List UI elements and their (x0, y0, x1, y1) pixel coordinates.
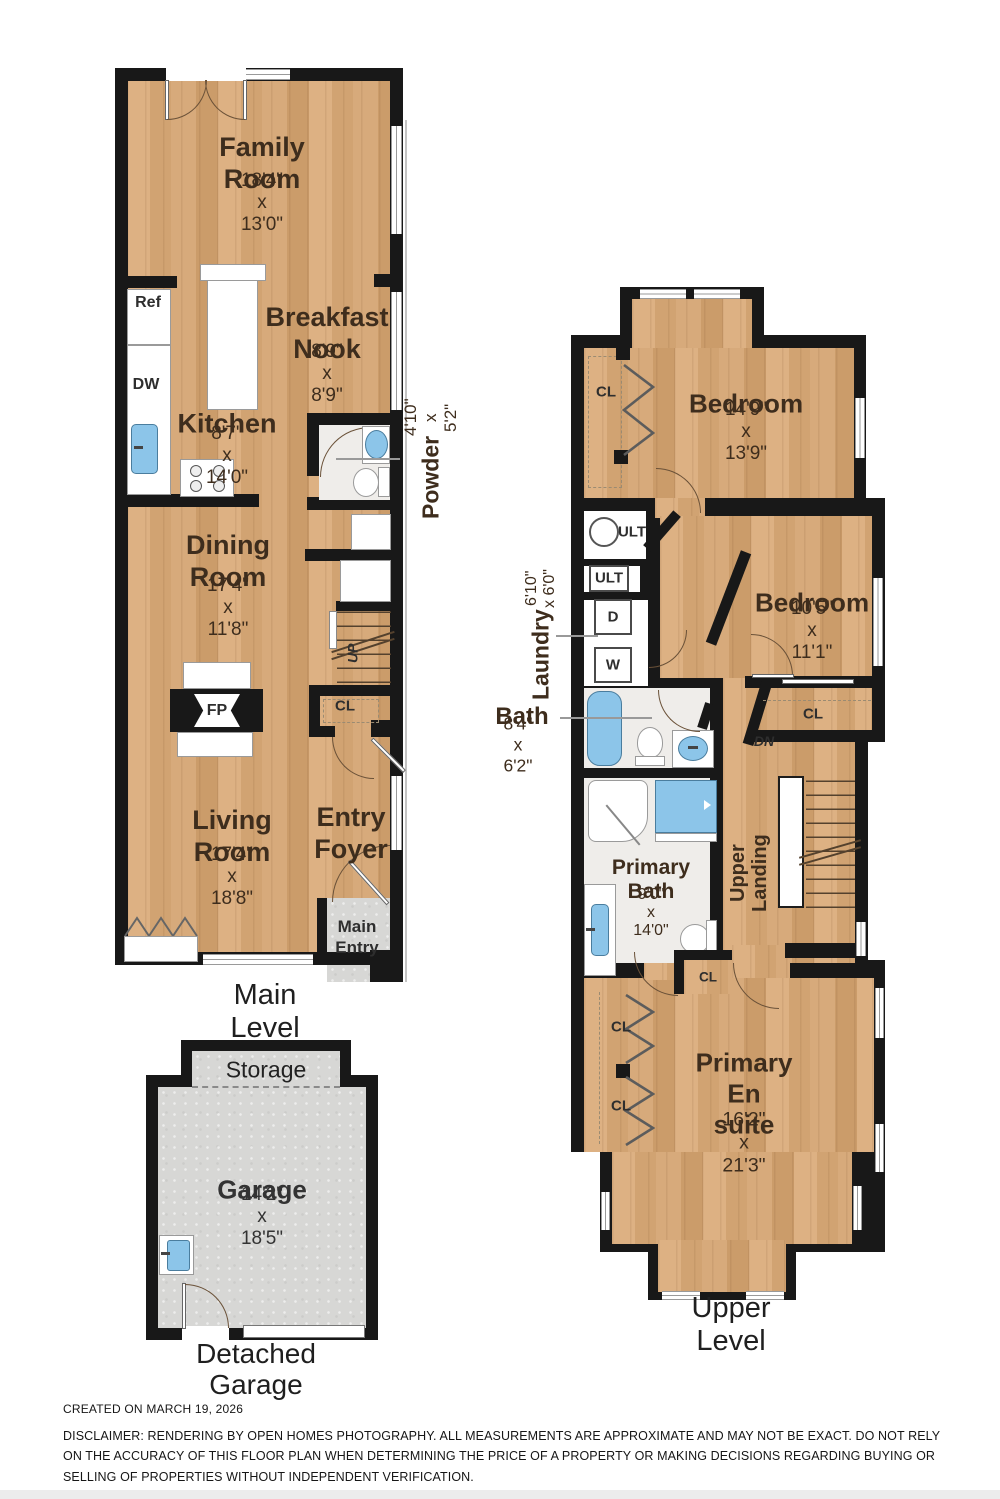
fireplace-label: FP (207, 702, 227, 720)
bifold-door (622, 364, 655, 456)
created-date: CREATED ON MARCH 19, 2026 (63, 1402, 243, 1416)
faucet-icon (586, 928, 595, 931)
room-dims-family: 18'4" x 13'0" (241, 170, 283, 236)
bay-floor (632, 299, 752, 353)
storage-label: Storage (226, 1057, 307, 1084)
window-niche (351, 514, 391, 550)
up-text: UP (345, 643, 361, 662)
window (640, 289, 686, 299)
wall (181, 1040, 351, 1051)
window (856, 922, 866, 956)
wall (336, 601, 403, 611)
toilet-bowl (637, 727, 663, 758)
room-dims-primary-bath: 9'0" x 14'0" (633, 886, 668, 940)
closet-label: CL (335, 698, 355, 715)
up-label: UP (344, 632, 361, 674)
room-label-powder: Powder 4'10" x 5'2" (399, 400, 463, 518)
window (853, 1186, 862, 1230)
shower-ledge (655, 833, 717, 842)
room-dims-bath: 8'4" x 6'2" (503, 714, 532, 777)
room-dims-garage: 14'2" x 18'5" (241, 1184, 283, 1250)
kitchen-island (207, 281, 258, 410)
wall (309, 685, 392, 696)
wall (307, 413, 403, 425)
room-label-foyer: Entry Foyer (314, 801, 388, 865)
room-dims-kitchen: 8'7" x 14'0" (206, 423, 248, 489)
wall (309, 726, 335, 737)
faucet-icon (134, 446, 143, 449)
shower-door-icon (640, 806, 647, 816)
stairwell (778, 776, 804, 908)
burner-icon (190, 480, 202, 492)
closet-dashed (763, 700, 871, 701)
washer-label: W (606, 657, 620, 674)
bathtub (587, 691, 622, 766)
garage-door (243, 1325, 365, 1338)
window (391, 776, 402, 850)
window (873, 578, 883, 666)
utility-label: ULT (595, 570, 623, 587)
window (875, 988, 884, 1038)
closet-label: CL (803, 706, 823, 723)
room-dims-dining: 17'4" x 11'8" (207, 575, 249, 641)
stair-rail (329, 611, 337, 649)
bay-zigzag (124, 916, 198, 938)
dishwasher-label: DW (133, 376, 160, 394)
door-leaf (752, 674, 794, 678)
closet-opening (782, 679, 854, 684)
toilet-tank (635, 756, 665, 766)
bottom-strip (0, 1490, 1000, 1499)
closet-label: CL (699, 970, 717, 985)
fireplace-hearth (177, 732, 253, 757)
main-level-title: Main Level (230, 979, 299, 1045)
fireplace-hearth (183, 662, 251, 689)
floor-plan-canvas: Ref DW Powder 4'10" x 5'2" UP (0, 0, 1000, 1499)
stair-landing (340, 560, 391, 602)
faucet-icon (161, 1252, 170, 1255)
dryer-label: D (608, 609, 619, 626)
window (391, 292, 402, 410)
window (601, 1192, 610, 1230)
water-heater-icon (589, 517, 619, 547)
window (875, 1124, 884, 1172)
storage-dashed-line (192, 1086, 340, 1088)
wall (616, 346, 630, 360)
room-dims-breakfast: 8'9" x 8'9" (311, 341, 343, 407)
closet-label: CL (596, 384, 616, 401)
ref-label: Ref (135, 294, 161, 312)
property-line (405, 120, 407, 982)
island-counter (200, 264, 266, 281)
wall (307, 413, 319, 476)
wall (115, 68, 128, 965)
room-dims-ensuite: 16'2" x 21'3" (722, 1109, 765, 1178)
toilet-bowl (353, 468, 379, 497)
closet-dashed (599, 992, 600, 1144)
shower-door-icon (704, 800, 711, 810)
wall (674, 950, 684, 994)
dn-label: DN (754, 733, 774, 749)
closet-label: CL (611, 1019, 631, 1036)
upper-landing-label: Upper Landing (727, 798, 771, 948)
toilet-tank (378, 467, 390, 497)
window (203, 954, 313, 965)
window (391, 126, 402, 234)
room-dims-bedroom2: 10'5" x 11'1" (791, 598, 833, 664)
powder-dims: 4'10" x 5'2" (401, 399, 461, 437)
faucet-icon (688, 746, 698, 749)
window (855, 398, 865, 458)
shower (588, 780, 648, 842)
burner-icon (190, 465, 202, 477)
leader-line (336, 458, 400, 460)
wall (374, 274, 403, 287)
room-label-laundry: Laundry 6'10" x 6'0" (513, 568, 569, 700)
window (694, 289, 740, 299)
laundry-dims: 6'10" x 6'0" (523, 568, 559, 609)
room-dims-bedroom1: 14'9" x 13'9" (725, 399, 767, 465)
main-entry-label: Main Entry (335, 916, 378, 958)
window (246, 69, 290, 80)
upper-level-title: Upper Level (692, 1292, 771, 1358)
disclaimer-text: DISCLAIMER: RENDERING BY OPEN HOMES PHOT… (63, 1426, 945, 1487)
wall (115, 276, 177, 288)
room-dims-living: 17'4" x 18'8" (211, 844, 253, 910)
kitchen-sink (131, 424, 158, 474)
closet-label: CL (611, 1098, 631, 1115)
wall (317, 898, 327, 965)
leader-line (560, 717, 652, 719)
powder-name: Powder (418, 436, 445, 519)
window-seat (124, 936, 198, 962)
garage-sink (167, 1240, 190, 1271)
door-opening (166, 66, 246, 81)
laundry-name: Laundry (528, 609, 555, 700)
closet-dashed (588, 356, 622, 488)
utility-label: ULT (618, 524, 646, 541)
garage-title: Detached Garage (196, 1338, 316, 1400)
powder-sink (365, 430, 388, 459)
landing-text: Upper Landing (727, 834, 771, 912)
ensuite-bay-floor (658, 1240, 786, 1292)
